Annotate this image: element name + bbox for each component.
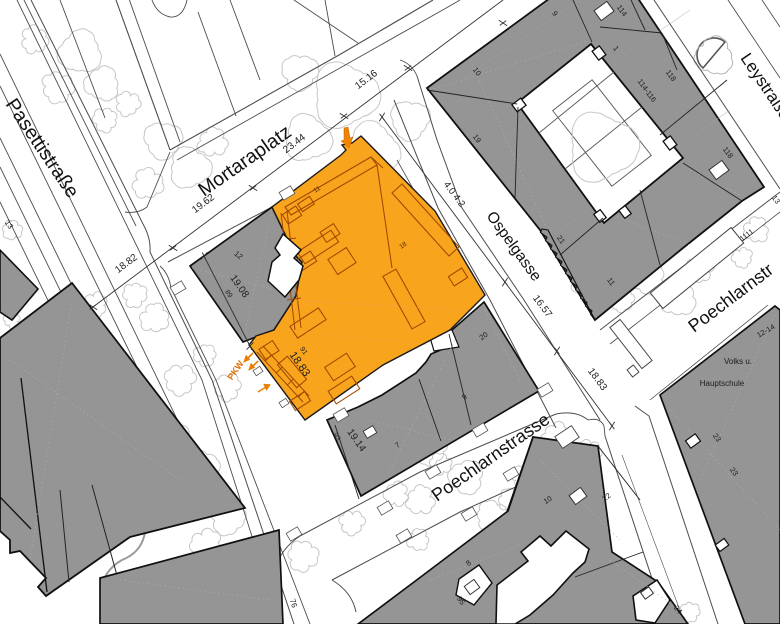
- svg-text:Hauptschule: Hauptschule: [700, 379, 745, 388]
- svg-text:Volks u.: Volks u.: [724, 357, 752, 366]
